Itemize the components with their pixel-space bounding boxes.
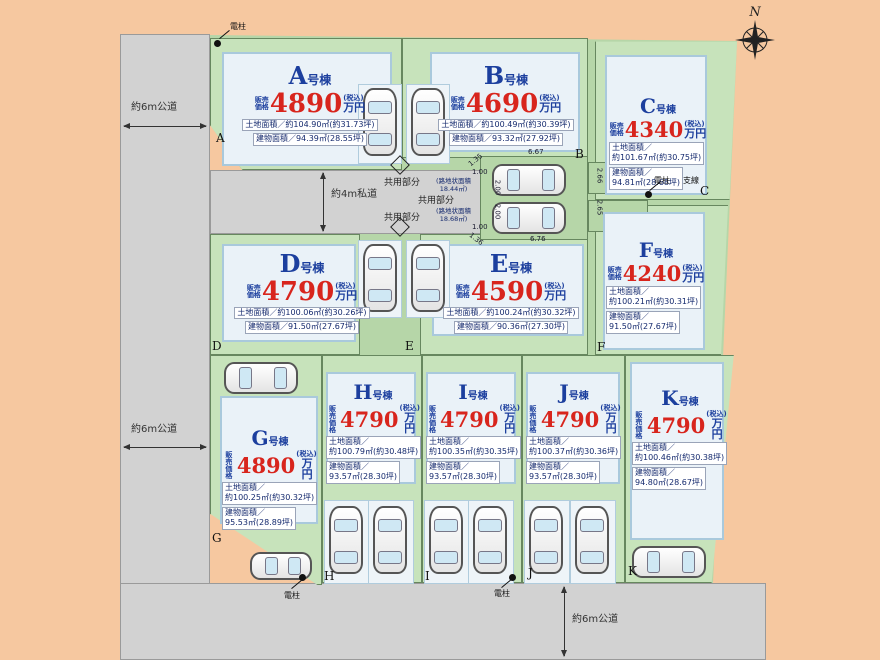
- price: 販売価格4590(税込)万円: [438, 279, 584, 305]
- boundary-letter-H: H: [324, 570, 334, 582]
- lot-title: E号棟: [438, 252, 584, 276]
- road-label-bottom: 約6m公道: [572, 615, 618, 625]
- road-width-arrow: [124, 126, 206, 127]
- lot-info-I: I号棟 販売価格4790(税込)万円 土地面積／ 約100.35㎡(約30.35…: [426, 382, 520, 484]
- land-area: 土地面積／ 約100.25㎡(約30.32坪): [222, 482, 317, 505]
- road-bottom: [120, 583, 766, 660]
- lot-title: C号棟: [609, 96, 707, 116]
- lot-info-H: H号棟 販売価格4790(税込)万円 土地面積／ 約100.79㎡(約30.48…: [326, 382, 420, 484]
- shared-area-label: 共用部分: [384, 179, 420, 188]
- dimension-label: 1.00: [472, 169, 488, 176]
- support-wire-label: 支線: [683, 177, 699, 185]
- shared-area-label: 共用部分: [418, 197, 454, 206]
- car: [473, 506, 507, 574]
- road-width-arrow: [323, 173, 324, 231]
- boundary-letter-F: F: [597, 341, 605, 353]
- price: 販売価格4890(税込)万円: [230, 91, 390, 117]
- dimension-label: 2.00: [493, 204, 500, 220]
- boundary-letter-K: K: [628, 565, 637, 577]
- building-area: 建物面積／93.32㎡(27.92坪): [449, 133, 563, 145]
- boundary-letter-I: I: [425, 570, 430, 582]
- car: [429, 506, 463, 574]
- alley-area-note: (路地状面積 18.44㎡): [436, 178, 471, 194]
- road-width-arrow: [564, 587, 565, 656]
- land-area: 土地面積／約100.06㎡(約30.26坪): [234, 307, 369, 319]
- car: [632, 546, 706, 578]
- building-area: 建物面積／90.36㎡(27.30坪): [454, 321, 568, 333]
- utility-pole-label: 電柱: [230, 23, 246, 31]
- land-area: 土地面積／約104.90㎡(約31.73坪): [242, 119, 377, 131]
- dimension-label: 2.66: [595, 168, 602, 184]
- utility-pole-dot: [214, 40, 221, 47]
- lot-info-G: G号棟 販売価格4890(税込)万円 土地面積／ 約100.25㎡(約30.32…: [222, 428, 318, 530]
- price: 販売価格4690(税込)万円: [436, 91, 576, 117]
- price: 販売価格4790(税込)万円: [632, 411, 728, 440]
- lot-title: J号棟: [526, 382, 622, 402]
- land-area: 土地面積／ 約100.46㎡(約30.38坪): [632, 442, 727, 465]
- land-area: 土地面積／ 約100.79㎡(約30.48坪): [326, 436, 421, 459]
- lot-info-E: E号棟 販売価格4590(税込)万円 土地面積／約100.24㎡(約30.32坪…: [438, 252, 584, 334]
- price: 販売価格4890(税込)万円: [222, 451, 318, 480]
- price: 販売価格4790(税込)万円: [526, 405, 622, 434]
- car: [329, 506, 363, 574]
- road-width-arrow: [124, 447, 206, 448]
- utility-pole-label: 電柱: [494, 590, 510, 598]
- building-area: 建物面積／91.50㎡(27.67坪): [245, 321, 359, 333]
- dimension-label: 1.00: [472, 224, 488, 231]
- car: [373, 506, 407, 574]
- lot-title: H号棟: [326, 382, 420, 402]
- lot-title: B号棟: [436, 64, 576, 88]
- lot-info-D: D号棟 販売価格4790(税込)万円 土地面積／約100.06㎡(約30.26坪…: [232, 252, 372, 334]
- price: 販売価格4340(税込)万円: [609, 119, 707, 140]
- boundary-letter-E: E: [405, 340, 414, 352]
- lot-title: A号棟: [230, 64, 390, 88]
- building-area: 建物面積／ 94.80㎡(28.67坪): [632, 467, 706, 490]
- land-area: 土地面積／ 約100.37㎡(約30.36坪): [526, 436, 621, 459]
- building-area: 建物面積／ 95.53㎡(28.89坪): [222, 507, 296, 530]
- building-area: 建物面積／ 93.57㎡(28.30坪): [526, 461, 600, 484]
- dimension-label: 2.65: [595, 200, 602, 216]
- dimension-label: 2.00: [493, 180, 500, 196]
- car: [529, 506, 563, 574]
- building-area: 建物面積／94.39㎡(28.55坪): [253, 133, 367, 145]
- boundary-letter-A: A: [216, 132, 225, 144]
- building-area: 建物面積／ 94.81㎡(28.68坪): [609, 167, 683, 190]
- boundary-letter-C: C: [700, 185, 709, 197]
- dimension-label: 6.67: [528, 149, 544, 156]
- lot-title: F号棟: [606, 240, 706, 260]
- boundary-letter-G: G: [212, 532, 222, 544]
- lot-info-J: J号棟 販売価格4790(税込)万円 土地面積／ 約100.37㎡(約30.36…: [526, 382, 622, 484]
- lot-info-A: A号棟 販売価格4890(税込)万円 土地面積／約104.90㎡(約31.73坪…: [230, 64, 390, 146]
- lot-title: I号棟: [426, 382, 520, 402]
- utility-pole-dot: [509, 574, 516, 581]
- price: 販売価格4240(税込)万円: [606, 263, 706, 284]
- lot-info-K: K号棟 販売価格4790(税込)万円 土地面積／ 約100.46㎡(約30.38…: [632, 388, 728, 490]
- road-left: [120, 34, 210, 660]
- compass-north-label: N: [748, 5, 761, 20]
- land-area: 土地面積／ 約100.21㎡(約30.31坪): [606, 286, 701, 309]
- utility-pole-dot: [645, 191, 652, 198]
- lot-title: D号棟: [232, 252, 372, 276]
- site-plan: A号棟 販売価格4890(税込)万円 土地面積／約104.90㎡(約31.73坪…: [0, 0, 880, 660]
- utility-pole-dot: [299, 574, 306, 581]
- dimension-label: 6.76: [530, 236, 546, 243]
- building-area: 建物面積／ 91.50㎡(27.67坪): [606, 311, 680, 334]
- lot-title: G号棟: [222, 428, 318, 448]
- car: [492, 202, 566, 234]
- lot-info-F: F号棟 販売価格4240(税込)万円 土地面積／ 約100.21㎡(約30.31…: [606, 240, 706, 334]
- land-area: 土地面積／ 約100.35㎡(約30.35坪): [426, 436, 521, 459]
- price: 販売価格4790(税込)万円: [232, 279, 372, 305]
- car: [492, 164, 566, 196]
- road-label-left-bottom: 約6m公道: [131, 425, 177, 435]
- building-area: 建物面積／ 93.57㎡(28.30坪): [326, 461, 400, 484]
- land-area: 土地面積／ 約101.67㎡(約30.75坪): [609, 142, 704, 165]
- land-area: 土地面積／約100.49㎡(約30.39坪): [438, 119, 573, 131]
- building-area: 建物面積／ 93.57㎡(28.30坪): [426, 461, 500, 484]
- road-label-left-top: 約6m公道: [131, 103, 177, 113]
- boundary-letter-B: B: [575, 148, 584, 160]
- price: 販売価格4790(税込)万円: [326, 405, 420, 434]
- compass-icon: N: [726, 2, 784, 68]
- price: 販売価格4790(税込)万円: [426, 405, 520, 434]
- lot-title: K号棟: [632, 388, 728, 408]
- land-area: 土地面積／約100.24㎡(約30.32坪): [443, 307, 578, 319]
- boundary-letter-D: D: [212, 340, 222, 352]
- car: [575, 506, 609, 574]
- car: [224, 362, 298, 394]
- alley-area-note: (路地状面積 18.68㎡): [436, 208, 471, 224]
- road-label-private: 約4m私道: [331, 190, 377, 200]
- utility-pole-label: 電柱: [284, 592, 300, 600]
- lot-info-B: B号棟 販売価格4690(税込)万円 土地面積／約100.49㎡(約30.39坪…: [436, 64, 576, 146]
- boundary-letter-J: J: [528, 567, 533, 579]
